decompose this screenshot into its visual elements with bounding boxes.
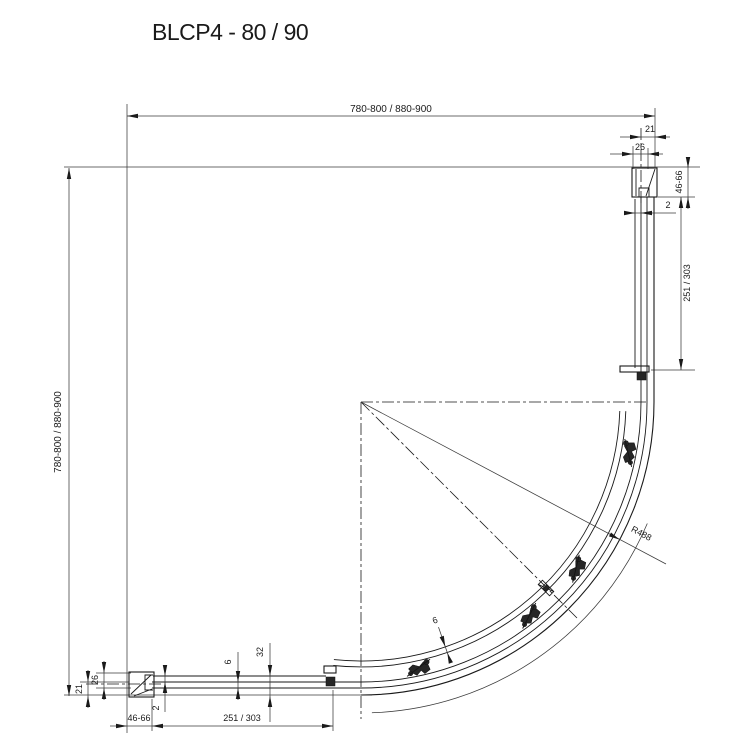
dim-top-width-label: 780-800 / 880-900 xyxy=(350,104,432,115)
svg-text:46-66: 46-66 xyxy=(127,713,150,723)
door-glass-outer-face xyxy=(333,411,626,667)
tray-edge-arc xyxy=(372,524,647,713)
glass-outer-face xyxy=(152,197,647,688)
svg-text:6: 6 xyxy=(431,615,439,626)
dim-top-width: 780-800 / 880-900 xyxy=(127,104,655,118)
wall-profile-top-right xyxy=(632,168,657,197)
door-glass-inner-face xyxy=(334,411,620,661)
dim-top-right-2: 2 xyxy=(624,200,676,215)
svg-text:6: 6 xyxy=(223,659,233,664)
wall-profile-bottom-left xyxy=(129,672,154,697)
svg-text:251 / 303: 251 / 303 xyxy=(682,264,692,302)
centerlines xyxy=(86,128,649,719)
dim-bottom-left-46-66: 46-66 xyxy=(110,713,333,728)
dim-left-height: 780-800 / 880-900 xyxy=(53,168,71,696)
svg-text:26: 26 xyxy=(635,142,645,152)
svg-text:2: 2 xyxy=(665,200,670,210)
svg-text:32: 32 xyxy=(255,647,265,657)
dim-bottom-left-26: 26 xyxy=(90,661,106,700)
dim-radius-label: R488 xyxy=(630,524,654,543)
dim-left-height-label: 780-800 / 880-900 xyxy=(53,391,64,473)
panel-bracket-right xyxy=(620,366,649,380)
svg-text:251 / 303: 251 / 303 xyxy=(223,713,261,723)
door-joint xyxy=(538,580,554,596)
technical-drawing-svg: BLCP4 - 80 / 90 xyxy=(0,0,750,750)
outer-edge-arc xyxy=(361,197,654,695)
dim-bottom-left-32: 32 xyxy=(255,643,272,722)
roller-cluster-4 xyxy=(404,659,432,678)
sliding-door-panels xyxy=(333,411,626,667)
svg-text:2: 2 xyxy=(151,705,161,710)
dim-bottom-left-21: 21 xyxy=(74,670,90,708)
extension-lines xyxy=(64,104,700,733)
svg-text:21: 21 xyxy=(645,124,655,134)
svg-text:46-66: 46-66 xyxy=(674,170,684,193)
svg-text:21: 21 xyxy=(74,684,84,694)
drawing-title: BLCP4 - 80 / 90 xyxy=(152,19,308,45)
dim-top-right-46-66: 46-66 xyxy=(674,157,690,209)
fixed-glass-panels xyxy=(152,197,654,695)
svg-text:26: 26 xyxy=(90,675,100,685)
dim-radius-r488: R488 xyxy=(361,402,666,564)
dim-top-right-251-303: 251 / 303 xyxy=(679,197,692,370)
dim-top-right-21: 21 xyxy=(620,124,670,139)
drawing-page: BLCP4 - 80 / 90 xyxy=(0,0,750,750)
centerline-diagonal-45 xyxy=(361,402,577,618)
